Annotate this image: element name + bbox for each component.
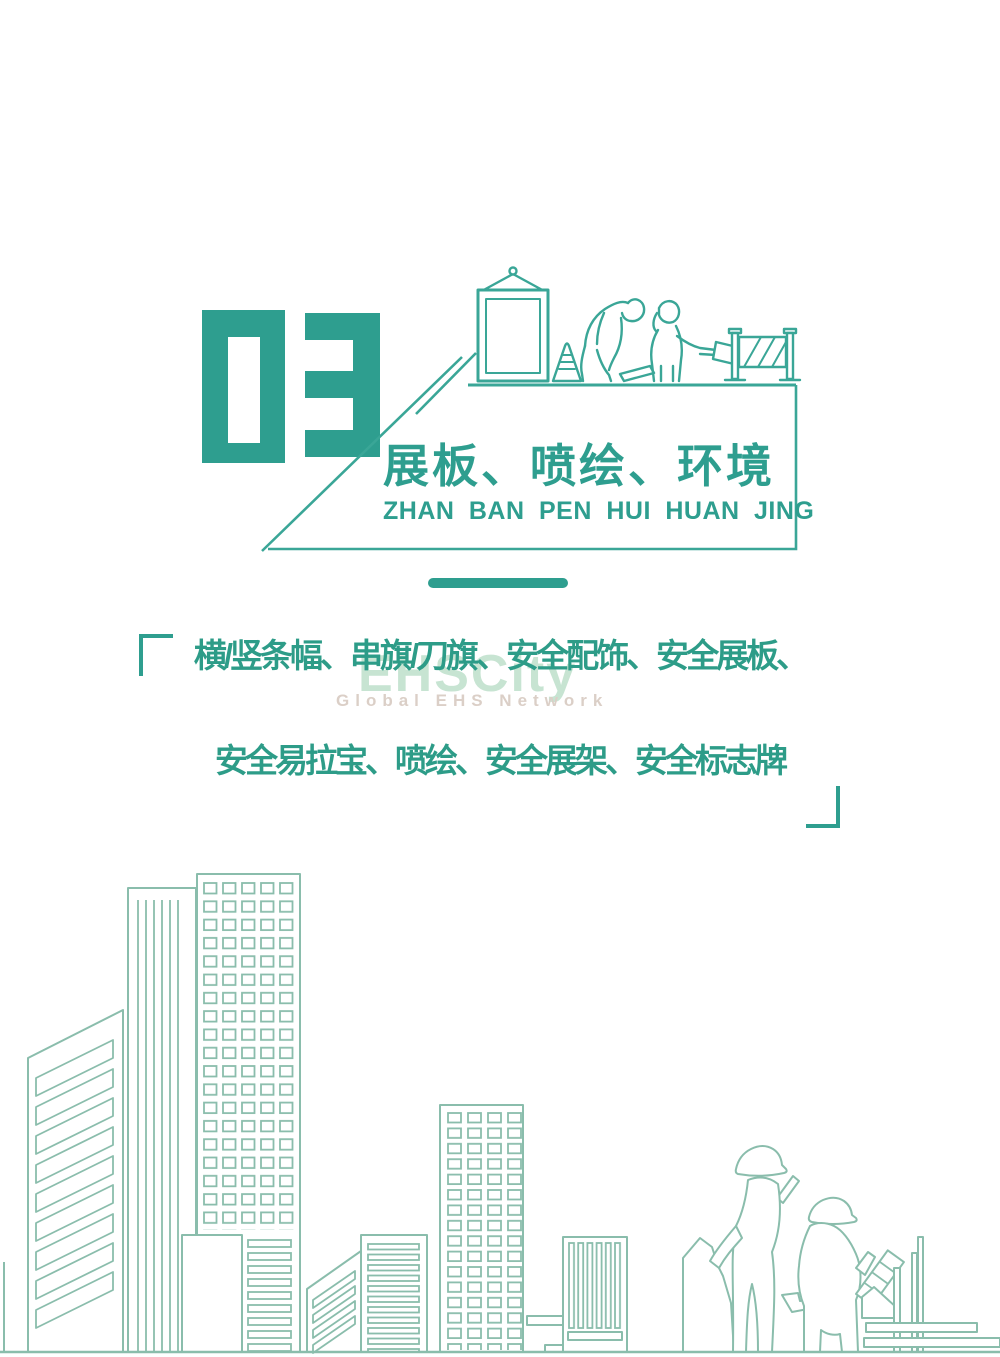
beam-upper [866,1323,977,1332]
service-description: 横/竖条幅、串旗/刀旗、安全配饰、安全展板、 安全易拉宝、喷绘、安全展架、安全标… [120,630,880,787]
page-title: 展板、喷绘、环境 [383,430,775,496]
worker-helmet [809,1198,857,1224]
building-slat-tower [28,1010,123,1352]
header-illustration [478,268,800,382]
service-description-line2: 安全易拉宝、喷绘、安全展架、安全标志牌 [120,735,880,787]
frame-diagonal-short [416,353,476,414]
building-vertical-slats [563,1237,627,1352]
barrier-icon [725,329,800,380]
worker-body [798,1223,860,1352]
building-entrance [182,1235,292,1352]
worker-shoveling-icon [651,301,737,381]
traffic-cone-icon [553,344,581,382]
digit-zero [202,310,285,463]
building-perspective [307,1251,361,1353]
brochure-page: 03 展板、喷绘、环境 ZHAN BAN PEN HUI HUAN JING E… [0,0,1000,1357]
divider-bar [428,578,568,588]
ladder-base-block [862,1287,897,1318]
digit-three [305,313,380,457]
quote-bracket-close [806,786,840,828]
worker-helmet [736,1146,787,1176]
city-skyline [0,874,1000,1353]
worker-body [733,1177,780,1352]
service-description-line1: 横/竖条幅、串旗/刀旗、安全配饰、安全展板、 [120,630,880,682]
worker-bending-icon [581,299,654,381]
worker-silhouette-short [798,1198,875,1352]
display-board-icon [478,268,548,382]
building-striped [361,1235,427,1352]
steel-structure [856,1237,1000,1352]
beam-lower [864,1338,1000,1347]
pole-3 [918,1237,923,1352]
section-number-graphic [202,310,380,463]
page-title-pinyin: ZHAN BAN PEN HUI HUAN JING [383,497,814,526]
